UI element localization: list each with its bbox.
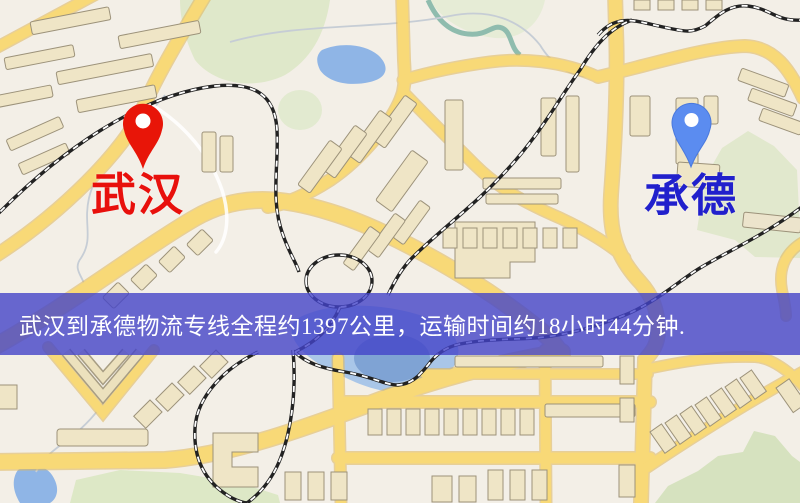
origin-label: 武汉 (91, 173, 185, 218)
destination-label: 承德 (644, 174, 738, 219)
route-info-text: 武汉到承德物流专线全程约1397公里，运输时间约18小时44分钟. (0, 307, 685, 341)
map-view[interactable]: 武汉 承德 武汉到承德物流专线全程约1397公里，运输时间约18小时44分钟. (0, 0, 800, 503)
map-canvas (0, 0, 800, 503)
route-info-banner: 武汉到承德物流专线全程约1397公里，运输时间约18小时44分钟. (0, 293, 800, 355)
